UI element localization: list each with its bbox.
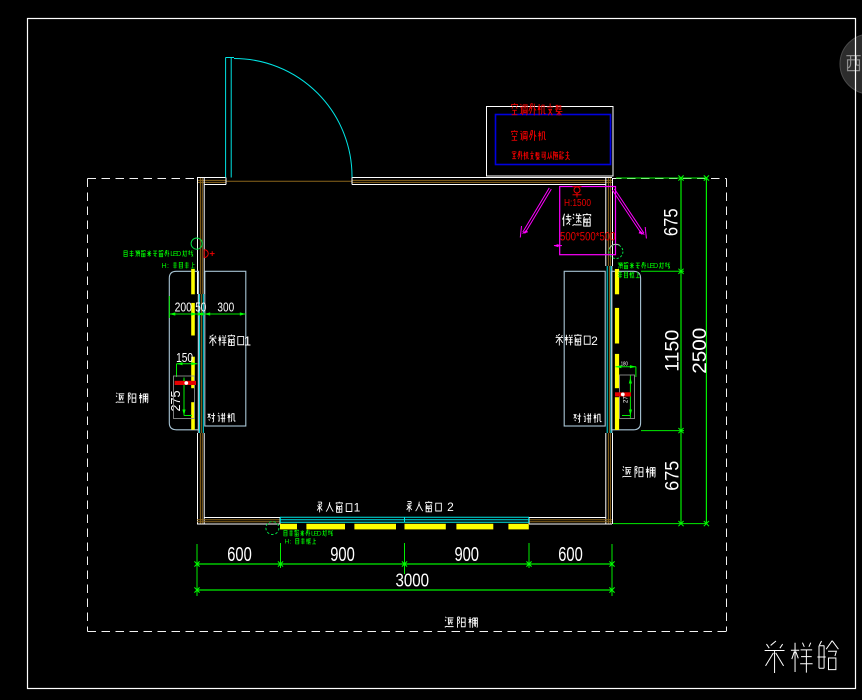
svg-text:1: 1 [354, 501, 361, 515]
svg-text:900: 900 [330, 544, 355, 566]
svg-text:1: 1 [244, 333, 251, 348]
svg-text:675: 675 [663, 461, 684, 491]
svg-text:50: 50 [195, 300, 206, 315]
svg-text:300: 300 [217, 300, 234, 315]
svg-text:275: 275 [168, 391, 183, 412]
svg-text:LED: LED [311, 531, 322, 538]
svg-text:180: 180 [621, 361, 628, 367]
svg-text:150: 150 [176, 350, 193, 365]
svg-text:3000: 3000 [395, 570, 429, 591]
svg-text:LED: LED [170, 250, 181, 258]
svg-text:H:: H: [162, 262, 170, 270]
svg-text:2500: 2500 [690, 328, 711, 374]
svg-text:H:: H: [285, 539, 292, 546]
svg-text:675: 675 [661, 208, 682, 236]
svg-text:600: 600 [227, 544, 252, 566]
svg-text:2: 2 [447, 500, 454, 514]
svg-text:500*500*500: 500*500*500 [560, 231, 616, 243]
svg-text:LED: LED [647, 262, 658, 270]
svg-text:1150: 1150 [663, 330, 684, 372]
svg-text:200: 200 [175, 300, 192, 315]
svg-text:900: 900 [454, 544, 479, 566]
svg-text:600: 600 [558, 544, 583, 566]
svg-text:2: 2 [591, 334, 598, 348]
svg-text:H:1500: H:1500 [564, 198, 591, 209]
